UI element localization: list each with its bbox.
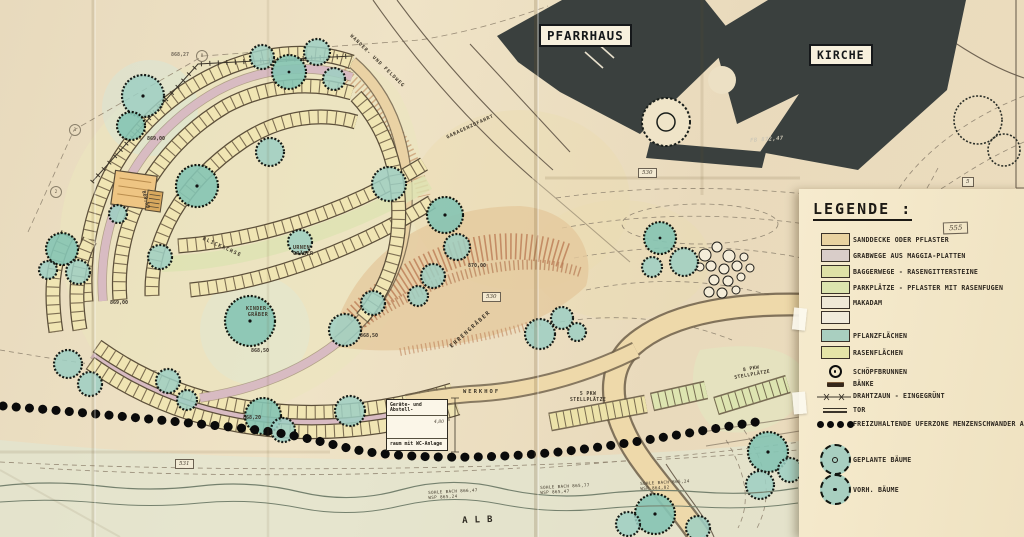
parcel-530a: 530 xyxy=(638,168,657,178)
legend-item: BAGGERWEGE - RASENGITTERSTEINE xyxy=(817,265,978,278)
legend-swatch xyxy=(821,329,850,342)
shed-dimension: 4,80 xyxy=(434,420,444,425)
swatch-cell xyxy=(817,346,853,359)
swatch-cell xyxy=(817,329,853,342)
shed-note-middle: 4,80 xyxy=(387,416,447,439)
existing-tree-icon xyxy=(817,474,853,505)
swatch-cell xyxy=(817,249,853,262)
elevation-label: 868,50 xyxy=(360,333,378,339)
swatch-cell xyxy=(817,311,853,324)
swatch-cell xyxy=(817,281,853,294)
elevation-label: 868,50 xyxy=(251,348,269,354)
parcel-5: 5 xyxy=(962,177,974,187)
parcel-530b: 530 xyxy=(482,292,501,302)
parcel-531: 531 xyxy=(175,459,194,469)
legend-symbol: FREIZUHALTENDE UFERZONE MENZENSCHWANDER … xyxy=(817,420,1024,428)
legend-item: PARKPLÄTZE - PFLASTER MIT RASENFUGEN xyxy=(817,281,1003,294)
elevation-label: 869,00 xyxy=(110,300,128,306)
legend-swatch xyxy=(821,311,850,324)
legend-symbol: DRAHTZAUN - EINGEGRÜNT xyxy=(817,392,945,400)
shed-note-line1: Geräte- und Abstell- xyxy=(387,400,447,416)
elevation-label: 870,00 xyxy=(468,263,486,269)
kindergraeber-label: KINDER-GRÄBER xyxy=(246,306,270,319)
buffer-dots-icon xyxy=(817,421,853,428)
legend-title: LEGENDE : xyxy=(813,200,912,221)
legend-item: MAKADAM xyxy=(817,296,882,309)
legend-swatch xyxy=(821,346,850,359)
legend-swatch xyxy=(821,265,850,278)
elevation-label: 868,27 xyxy=(171,52,189,58)
werkhof-label: WERKHOF xyxy=(463,389,500,396)
shed-note-line2: raum mit WC-Anlage xyxy=(387,439,447,450)
gate-icon xyxy=(817,406,853,415)
river-name-label: ALB xyxy=(462,515,500,528)
swatch-cell xyxy=(817,296,853,309)
site-plan-canvas: PFARRHAUS KIRCHE FB 872,47 WANDER- UND F… xyxy=(0,0,1024,537)
legend-item: SANDDECKE ODER PFLASTER xyxy=(817,233,949,246)
courtyard-tree-ring xyxy=(642,98,690,146)
pfarrhaus-label: PFARRHAUS xyxy=(539,24,632,47)
shed-note-box: Geräte- und Abstell- 4,80 raum mit WC-An… xyxy=(386,399,448,451)
survey-marker-2: 2 xyxy=(50,186,62,198)
survey-marker-1: 1 xyxy=(69,124,81,136)
legend-swatch xyxy=(821,233,850,246)
legend-symbol: VORH. BÄUME xyxy=(817,474,899,505)
legend-symbol: TOR xyxy=(817,406,866,415)
survey-marker-8: 8 xyxy=(196,50,208,62)
legend-symbol: SCHÖPFBRUNNEN xyxy=(817,365,907,378)
legend-swatch xyxy=(821,296,850,309)
legend-sheet: LEGENDE : 555 SANDDECKE ODER PFLASTER GR… xyxy=(799,189,1024,537)
stellplaetze5-label: 5 PKWSTELLPLÄTZE xyxy=(570,392,606,404)
legend-symbol: BÄNKE xyxy=(817,380,874,388)
tape-piece xyxy=(792,307,807,330)
urnengraeber-label: URNEN-GRÄBER xyxy=(293,245,313,258)
bench-icon xyxy=(817,382,853,387)
swatch-cell xyxy=(817,233,853,246)
tape-piece xyxy=(792,391,807,414)
legend-swatch xyxy=(821,249,850,262)
well-icon xyxy=(817,365,853,378)
elevation-label: 869,00 xyxy=(147,136,165,142)
planned-tree-icon xyxy=(817,444,853,475)
kirche-label: KIRCHE xyxy=(809,44,873,66)
swatch-cell xyxy=(817,265,853,278)
legend-swatch xyxy=(821,281,850,294)
elevation-label: 868,20 xyxy=(243,415,261,421)
legend-item: GRABWEGE AUS MAGGIA-PLATTEN xyxy=(817,249,966,262)
legend-item: RASENFLÄCHEN xyxy=(817,346,903,359)
legend-item xyxy=(817,311,853,324)
legend-item: PFLANZFLÄCHEN xyxy=(817,329,907,342)
legend-symbol: GEPLANTE BÄUME xyxy=(817,444,911,475)
